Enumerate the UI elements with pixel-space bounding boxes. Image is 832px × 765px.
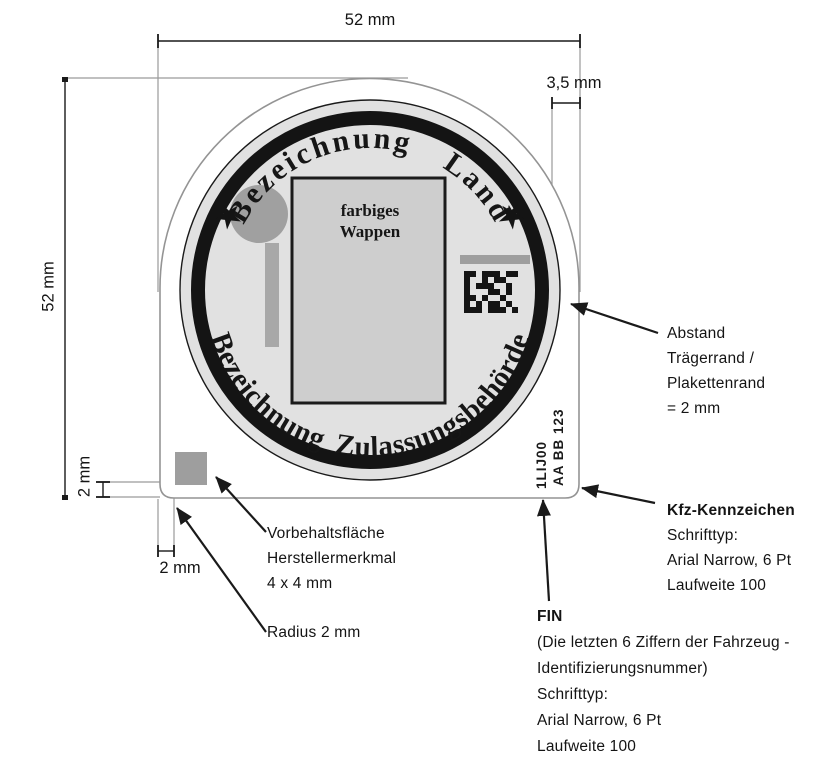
fin-arrow: [543, 500, 549, 601]
kfz-line-1: Schrifttyp:: [667, 523, 795, 548]
abstand-line-1: Abstand: [667, 321, 765, 346]
vorbehalt-line-2: Herstellermerkmal: [267, 546, 396, 571]
abstand-line-4: = 2 mm: [667, 396, 765, 421]
fin-line-3: Schrifttyp:: [537, 682, 790, 708]
dim-edge-gap-horizontal-label: 2 mm: [152, 559, 208, 578]
annotation-fin: FIN (Die letzten 6 Ziffern der Fahrzeug …: [537, 604, 790, 760]
dim-left-height-label: 52 mm: [40, 257, 59, 317]
kennzeichen-sample-text: AA BB 123: [551, 408, 566, 486]
abstand-line-2: Trägerrand /: [667, 346, 765, 371]
vorbehalt-line-3: 4 x 4 mm: [267, 571, 396, 596]
abstand-line-3: Plakettenrand: [667, 371, 765, 396]
kfz-line-2: Arial Narrow, 6 Pt: [667, 548, 795, 573]
wappen-label-line2: Wappen: [340, 222, 401, 241]
annotation-kfz: Kfz-Kennzeichen Schrifttyp: Arial Narrow…: [667, 498, 795, 598]
fin-line-5: Laufweite 100: [537, 734, 790, 760]
fin-line-1: (Die letzten 6 Ziffern der Fahrzeug -: [537, 630, 790, 656]
annotation-vorbehaltsflaeche: Vorbehaltsfläche Herstellermerkmal 4 x 4…: [267, 521, 396, 596]
annotation-abstand: Abstand Trägerrand / Plakettenrand = 2 m…: [667, 321, 765, 421]
wappen-label-line1: farbiges: [341, 201, 400, 220]
kfz-arrow: [582, 488, 655, 503]
vorbehalt-line-1: Vorbehaltsfläche: [267, 521, 396, 546]
seal-decoration-bar-right: [460, 255, 530, 264]
dim-plakette-offset-label: 3,5 mm: [545, 74, 603, 93]
fin-title: FIN: [537, 604, 790, 630]
annotation-radius: Radius 2 mm: [267, 620, 361, 645]
abstand-arrow: [571, 304, 658, 333]
dim-edge-gap-vertical-label: 2 mm: [76, 452, 95, 502]
diagram-canvas: farbiges Wappen Bezeichnung Land Bezeich…: [0, 0, 832, 765]
fin-line-4: Arial Narrow, 6 Pt: [537, 708, 790, 734]
seal-decoration-bar-left: [265, 243, 279, 347]
kfz-line-3: Laufweite 100: [667, 573, 795, 598]
dim-top-width-label: 52 mm: [330, 11, 410, 30]
herstellermerkmal-area: [175, 452, 207, 485]
kfz-title: Kfz-Kennzeichen: [667, 498, 795, 523]
fin-sample-text: 1LIJ00: [534, 441, 549, 489]
fin-line-2: Identifizierungsnummer): [537, 656, 790, 682]
radius-label: Radius 2 mm: [267, 620, 361, 645]
